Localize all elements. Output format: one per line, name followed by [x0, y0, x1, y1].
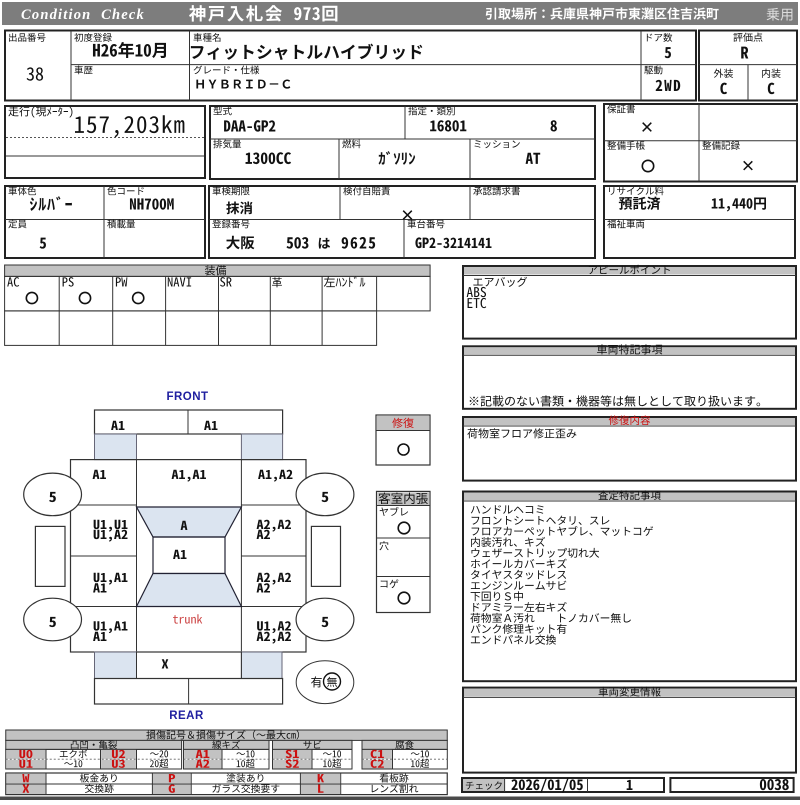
svg-text:REAR: REAR: [169, 710, 204, 722]
svg-text:FRONT: FRONT: [166, 391, 208, 403]
svg-text:Condition Check: Condition Check: [21, 7, 145, 23]
